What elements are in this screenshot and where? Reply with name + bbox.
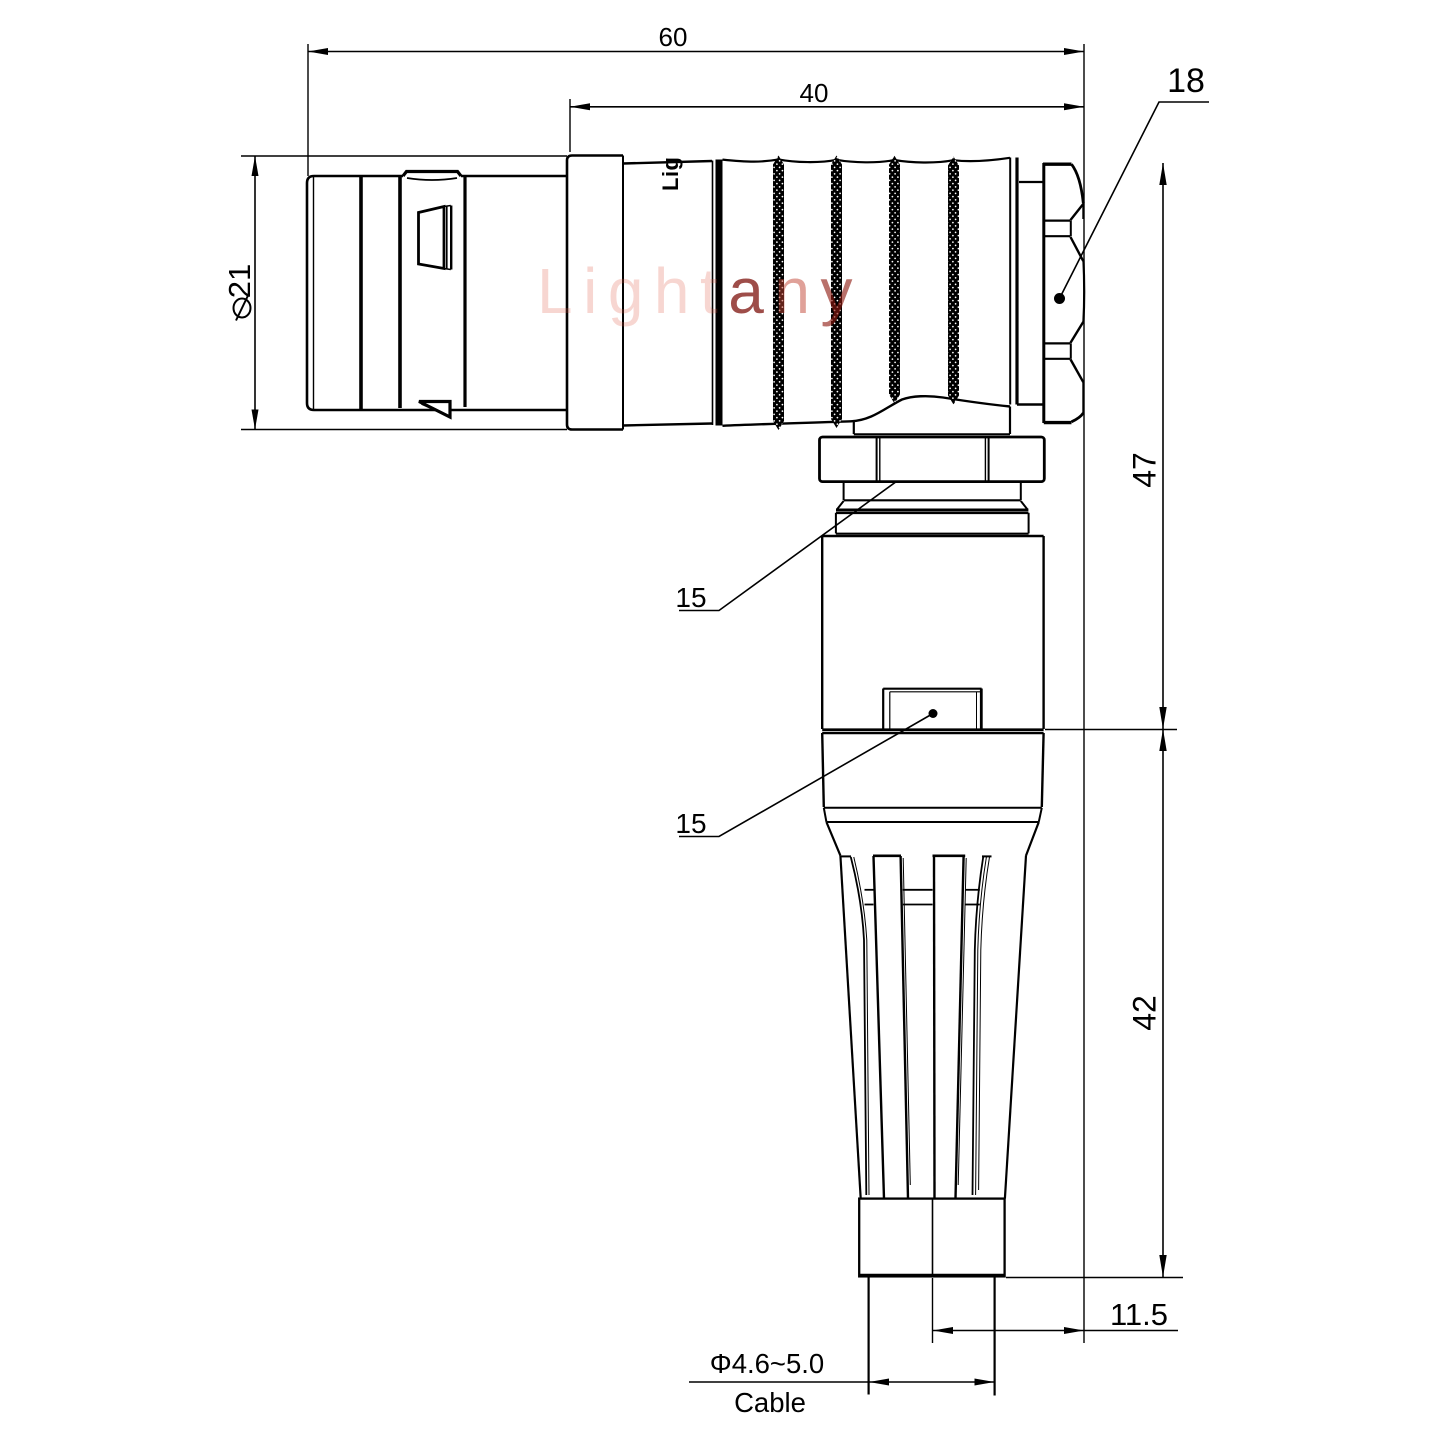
svg-text:Lightany: Lightany [537, 255, 863, 327]
svg-text:40: 40 [800, 78, 829, 108]
svg-text:Φ4.6~5.0: Φ4.6~5.0 [710, 1348, 824, 1379]
svg-text:60: 60 [659, 22, 688, 52]
svg-text:Cable: Cable [734, 1387, 806, 1418]
svg-text:Lig: Lig [658, 157, 683, 192]
svg-text:15: 15 [675, 582, 706, 613]
svg-text:47: 47 [1126, 452, 1162, 488]
svg-text:42: 42 [1126, 995, 1162, 1031]
svg-text:15: 15 [675, 808, 706, 839]
svg-text:21: 21 [222, 264, 257, 298]
svg-text:18: 18 [1167, 62, 1205, 100]
svg-text:11.5: 11.5 [1110, 1297, 1168, 1332]
